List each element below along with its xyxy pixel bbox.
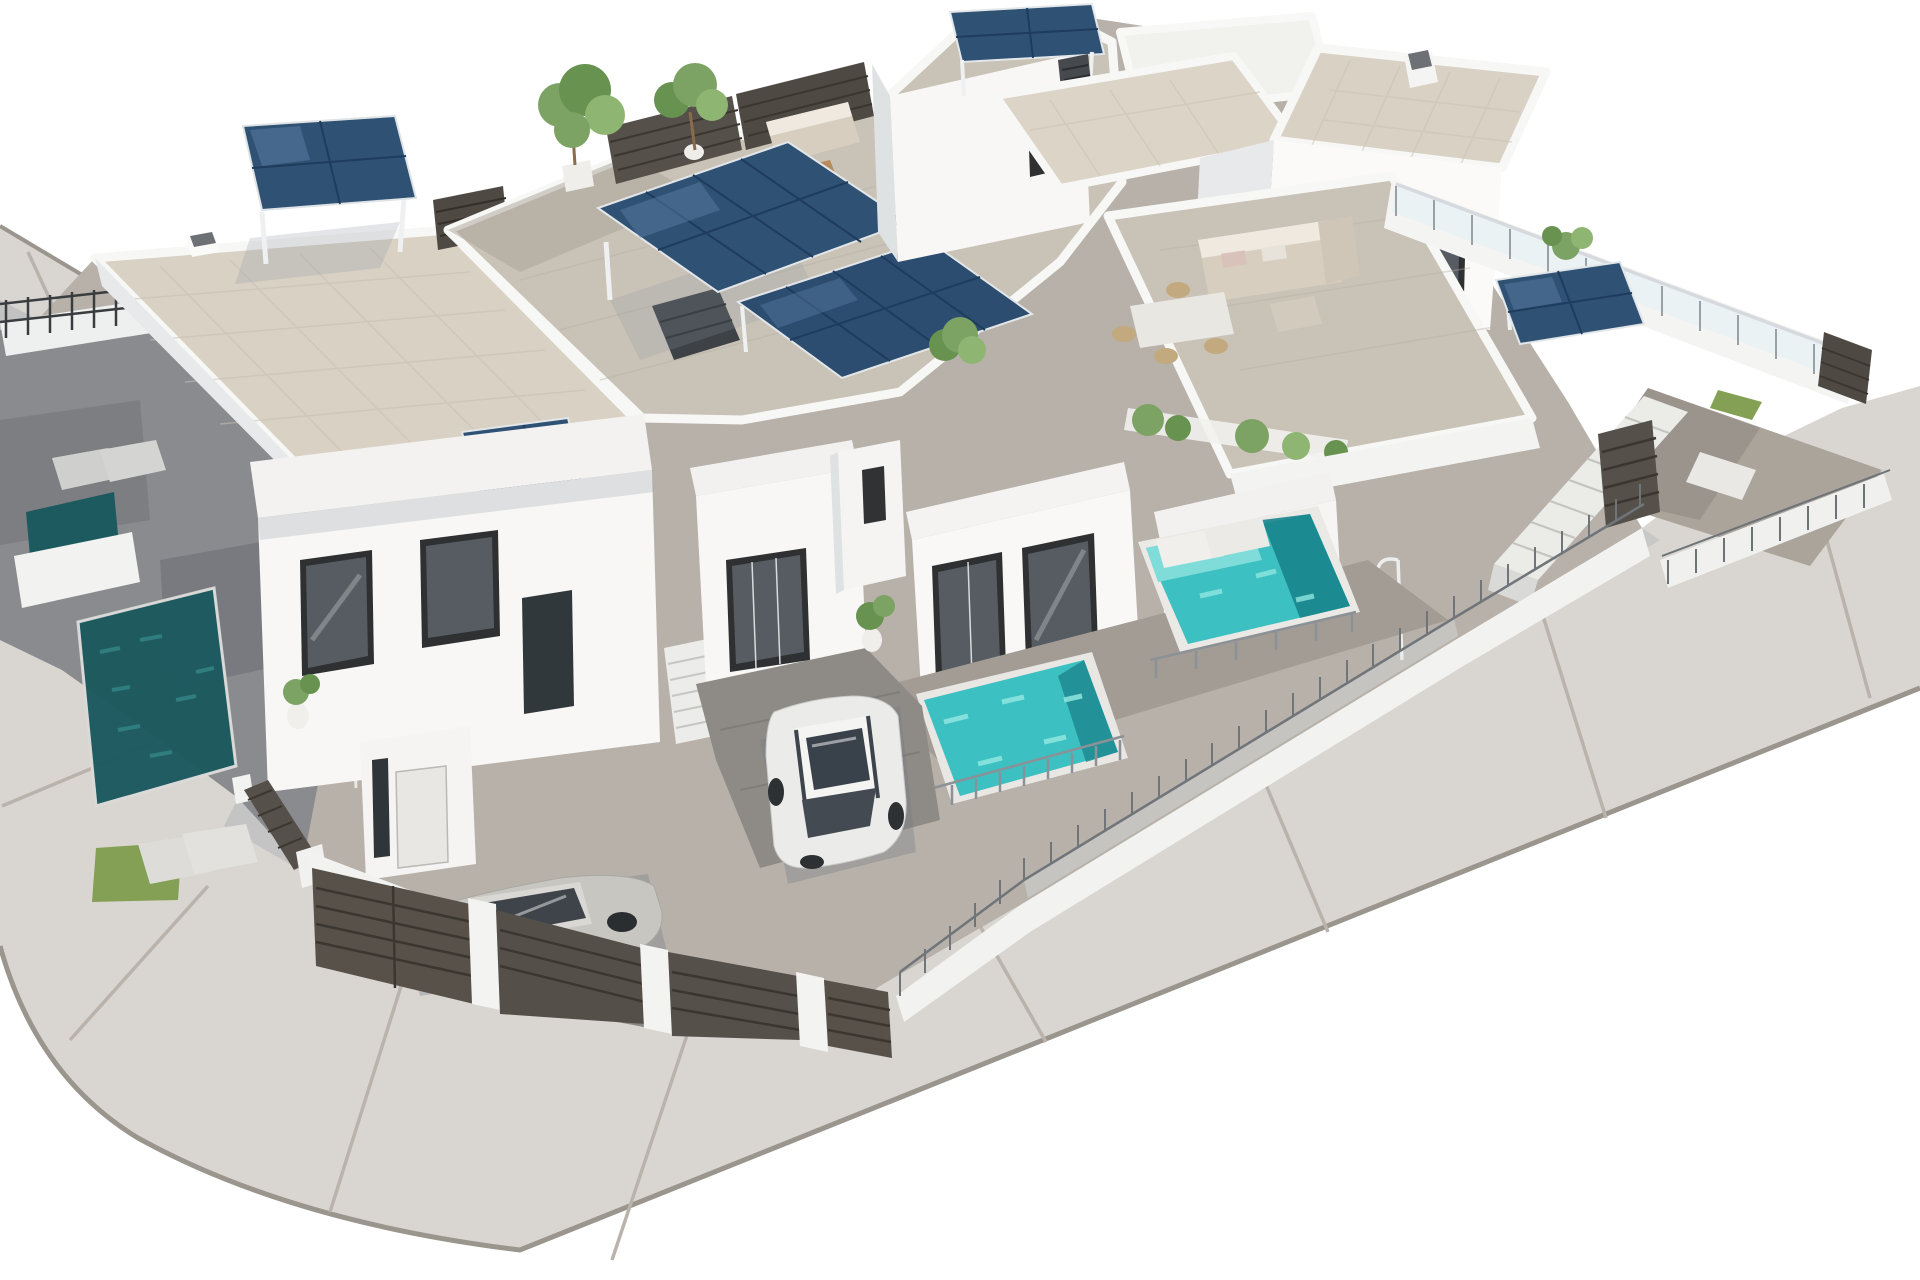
left-villa-door bbox=[522, 590, 574, 714]
porch-window bbox=[372, 758, 390, 858]
pot-by-car bbox=[862, 628, 882, 652]
silver-car-wheel-2 bbox=[607, 912, 637, 932]
plant-right-2 bbox=[1571, 227, 1593, 249]
planter-shrub-1 bbox=[1132, 404, 1164, 436]
tree-0-leaf-3 bbox=[585, 95, 625, 135]
villa-development-render bbox=[0, 0, 1920, 1280]
planter-shrub-2 bbox=[1165, 415, 1191, 441]
white-car-wheel-3 bbox=[800, 855, 824, 869]
pot-porch bbox=[287, 703, 309, 729]
left-villa-window-1-glass bbox=[306, 557, 368, 668]
chair-r4 bbox=[1166, 282, 1190, 298]
planter-shrub-4 bbox=[1282, 432, 1310, 460]
shrub-center-3 bbox=[958, 336, 986, 364]
left-villa-window-2-glass bbox=[426, 537, 494, 638]
white-car-wheel-1 bbox=[768, 778, 784, 806]
planter-shrub-3 bbox=[1235, 419, 1269, 453]
gate-pillar-1 bbox=[468, 898, 500, 1010]
chair-r2 bbox=[1154, 348, 1178, 364]
porch-door bbox=[396, 766, 448, 868]
tree-0-leaf-4 bbox=[554, 112, 590, 148]
tree-1-leaf-3 bbox=[696, 89, 728, 121]
pot-porch-leaf-2 bbox=[300, 674, 320, 694]
pot-by-car-leaf-2 bbox=[873, 595, 895, 617]
chair-r3 bbox=[1204, 338, 1228, 354]
chair-r1 bbox=[1112, 326, 1136, 342]
center-villa-door-glass bbox=[732, 555, 804, 664]
render-canvas: Aerial 3D render of a modern white villa… bbox=[0, 0, 1920, 1280]
plant-right-3 bbox=[1542, 226, 1562, 246]
gate-pillar-2 bbox=[640, 944, 672, 1034]
gate-pillar-3 bbox=[796, 972, 828, 1052]
white-car-sunroof bbox=[806, 728, 870, 790]
pool-left-main bbox=[78, 588, 236, 806]
tower-narrow-window bbox=[862, 466, 886, 524]
white-car-wheel-2 bbox=[888, 802, 904, 830]
